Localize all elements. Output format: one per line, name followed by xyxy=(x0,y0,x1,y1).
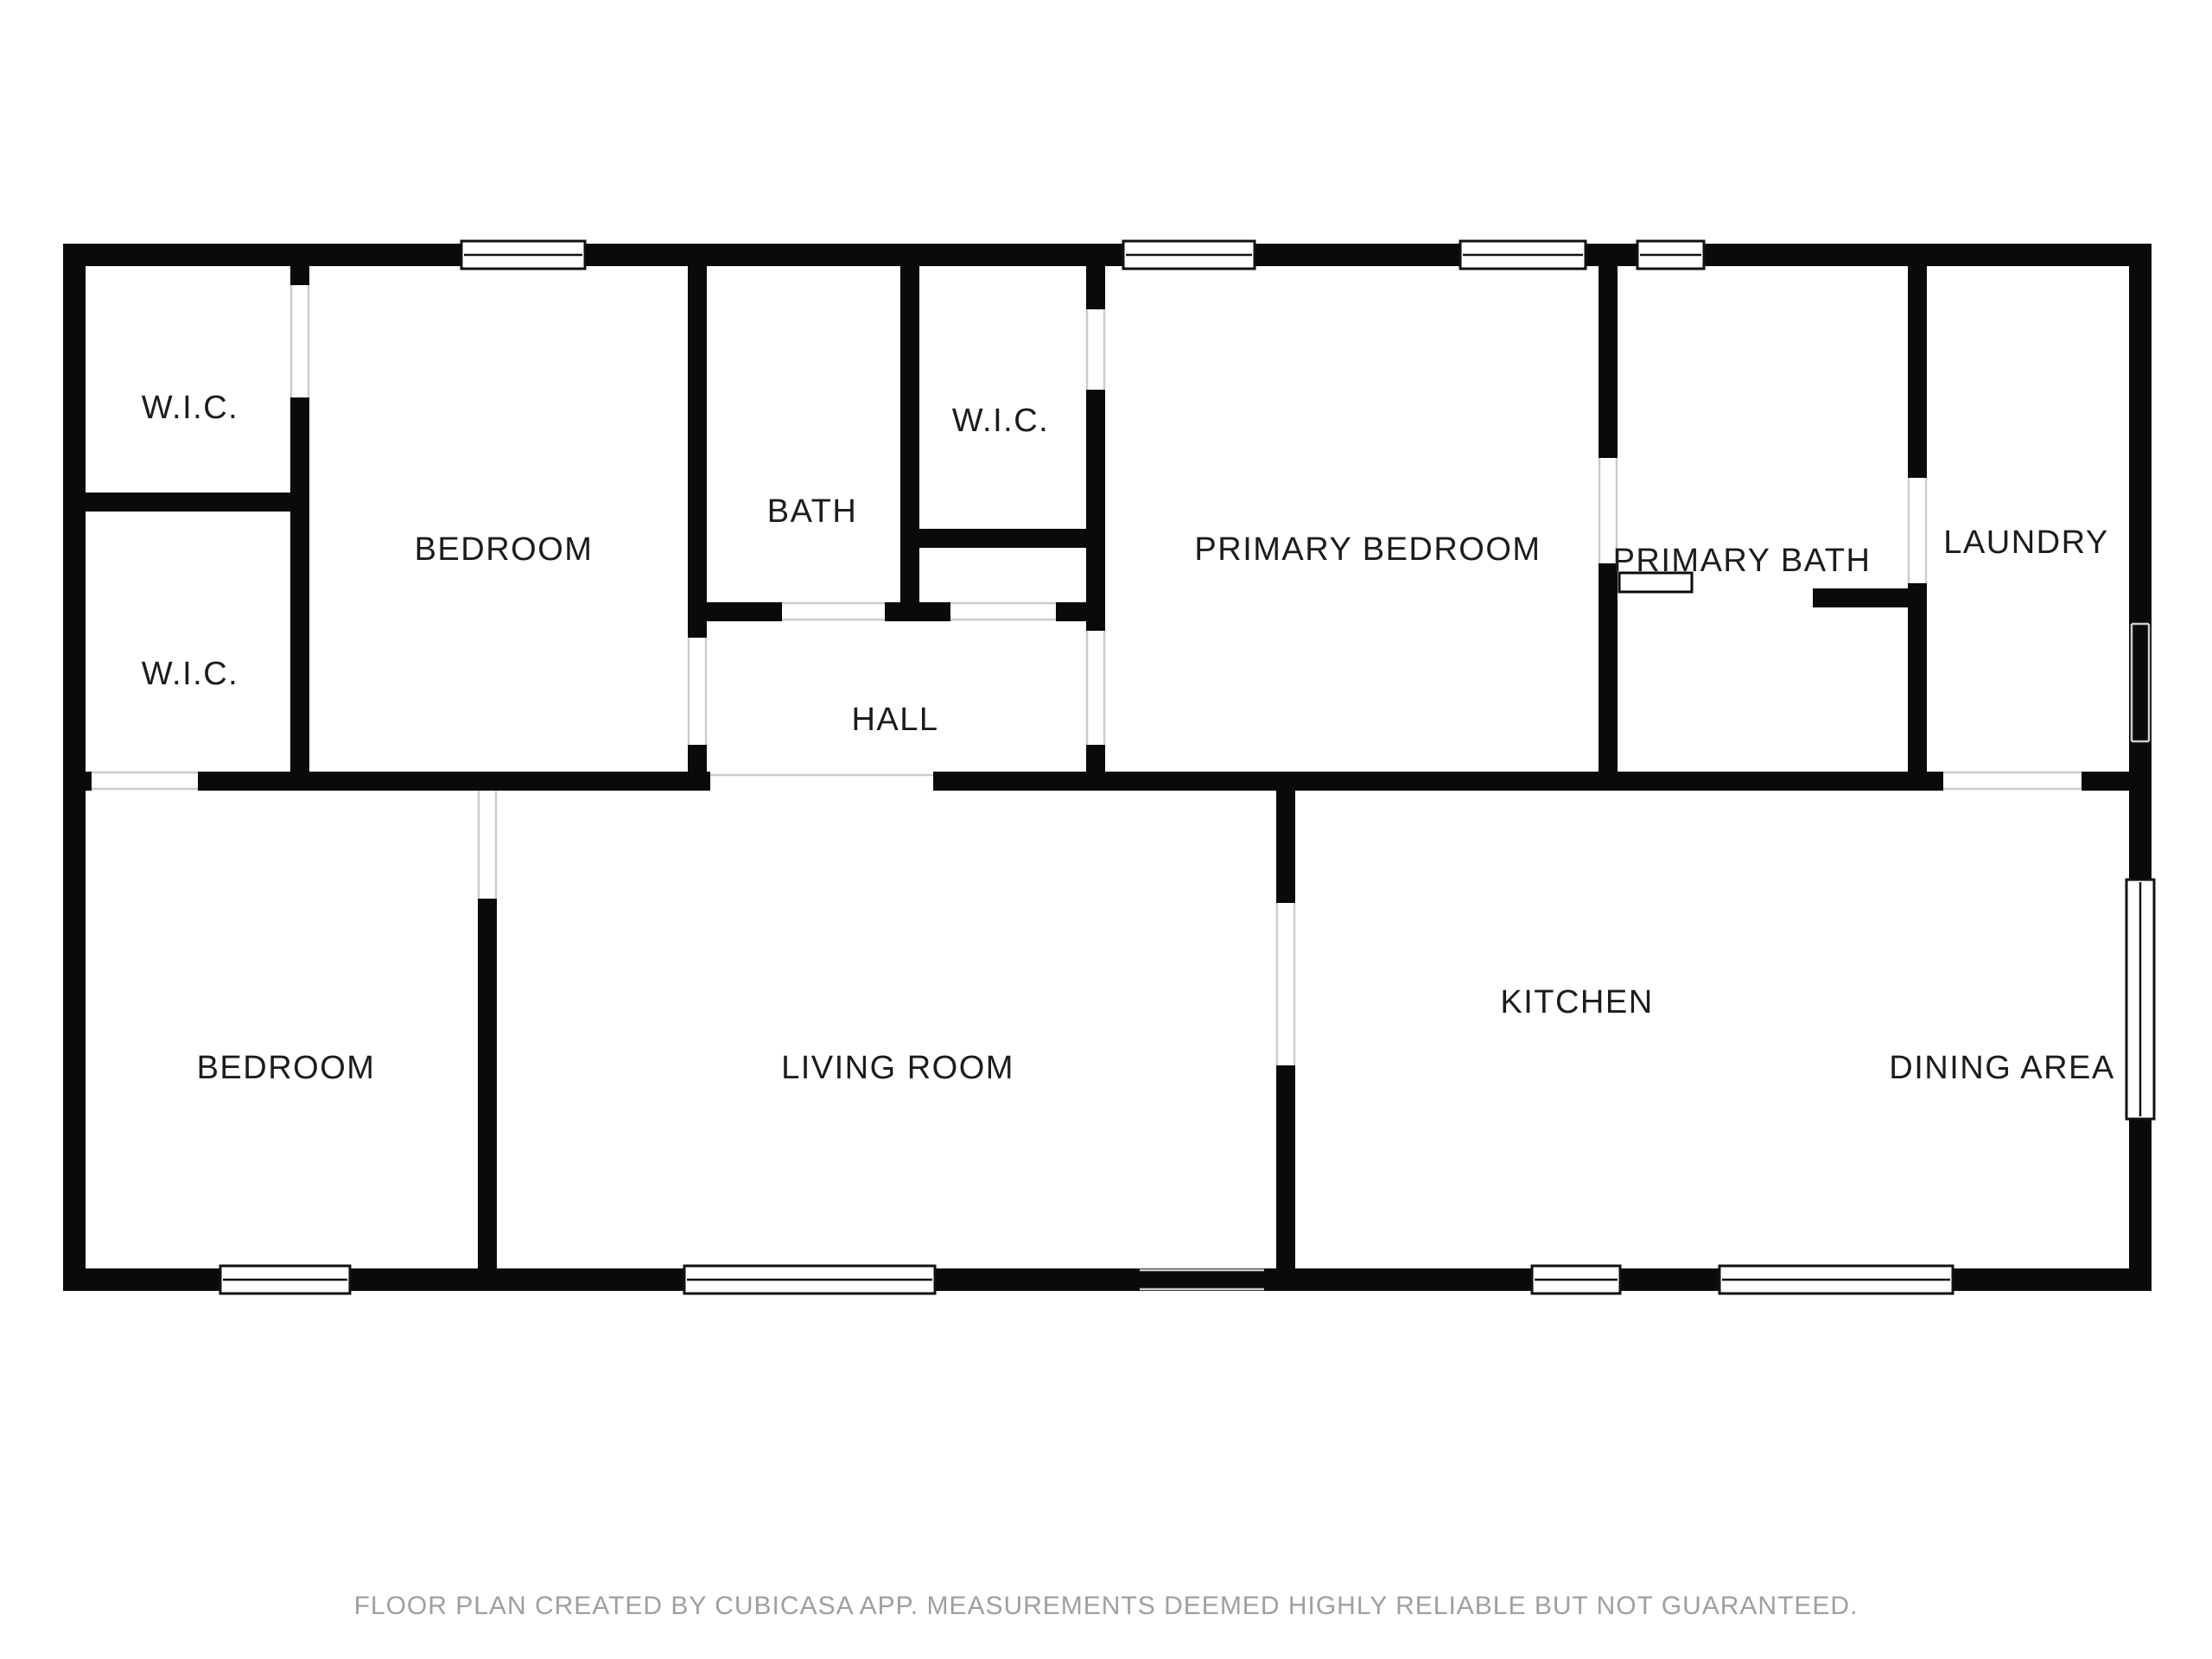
wall-living-kitchen-lower xyxy=(1276,1065,1295,1268)
wall-exterior-left xyxy=(63,244,86,1291)
room-label-wic-middle: W.I.C. xyxy=(952,403,1049,439)
footer-disclaimer: FLOOR PLAN CREATED BY CUBICASA APP. MEAS… xyxy=(354,1592,1859,1620)
wall-wic-divider xyxy=(86,493,290,512)
wall-wic-primary-mid xyxy=(1086,390,1105,631)
room-label-dining-area: DINING AREA xyxy=(1889,1050,2114,1086)
wall-wic-middle-bottom xyxy=(919,529,1086,548)
wall-wic-right-upper-stub xyxy=(290,266,309,285)
wall-divider-right xyxy=(933,772,1943,791)
room-label-living-room: LIVING ROOM xyxy=(781,1050,1014,1086)
wall-bedroom-bath-stub xyxy=(688,745,707,772)
wall-living-kitchen-upper xyxy=(1276,791,1295,903)
wall-closet-bottom-right xyxy=(1056,602,1105,621)
room-label-laundry: LAUNDRY xyxy=(1943,524,2108,561)
wall-wic-primary-stub-top xyxy=(1086,266,1105,309)
room-label-bedroom-top: BEDROOM xyxy=(415,531,594,568)
room-label-kitchen: KITCHEN xyxy=(1500,984,1653,1020)
wall-primary-bath-stub xyxy=(1813,588,1908,607)
wall-wic-primary-stub-bottom xyxy=(1086,745,1105,772)
room-label-hall: HALL xyxy=(851,702,938,738)
wall-exterior-top xyxy=(63,244,2152,266)
wall-bedroom-living-wall xyxy=(478,899,497,1268)
room-label-bath: BATH xyxy=(767,493,858,530)
wall-divider-left-stub xyxy=(63,772,92,791)
wall-bath-wic-wall xyxy=(900,266,919,602)
room-label-bedroom-bottom: BEDROOM xyxy=(197,1050,376,1086)
room-label-primary-bedroom: PRIMARY BEDROOM xyxy=(1194,531,1541,568)
wall-divider-left xyxy=(198,772,710,791)
wall-divider-right-end xyxy=(2082,772,2129,791)
wall-primary-bed-bath-upper xyxy=(1599,266,1618,458)
room-label-wic-bottom-left: W.I.C. xyxy=(142,656,238,692)
windows-layer xyxy=(220,241,2154,1294)
wall-bath-laundry-upper xyxy=(1908,266,1927,478)
walls-layer xyxy=(63,244,2152,1291)
wall-primary-bed-bath-lower xyxy=(1599,563,1618,772)
wall-bath-bottom-left xyxy=(688,602,782,621)
room-labels-layer: W.I.C.W.I.C.BEDROOMBATHW.I.C.PRIMARY BED… xyxy=(142,390,2115,1086)
room-label-primary-bath: PRIMARY BATH xyxy=(1613,543,1872,579)
room-label-wic-top-left: W.I.C. xyxy=(142,390,238,426)
wall-exterior-right xyxy=(2129,244,2152,1291)
floor-plan-page: W.I.C.W.I.C.BEDROOMBATHW.I.C.PRIMARY BED… xyxy=(0,0,2212,1659)
wall-bedroom-bath-upper xyxy=(688,266,707,638)
wall-wic-right-lower xyxy=(290,397,309,772)
floor-plan-drawing: W.I.C.W.I.C.BEDROOMBATHW.I.C.PRIMARY BED… xyxy=(0,0,2212,1659)
wall-bath-bottom-mid xyxy=(885,602,950,621)
wall-bath-laundry-lower xyxy=(1908,583,1927,772)
